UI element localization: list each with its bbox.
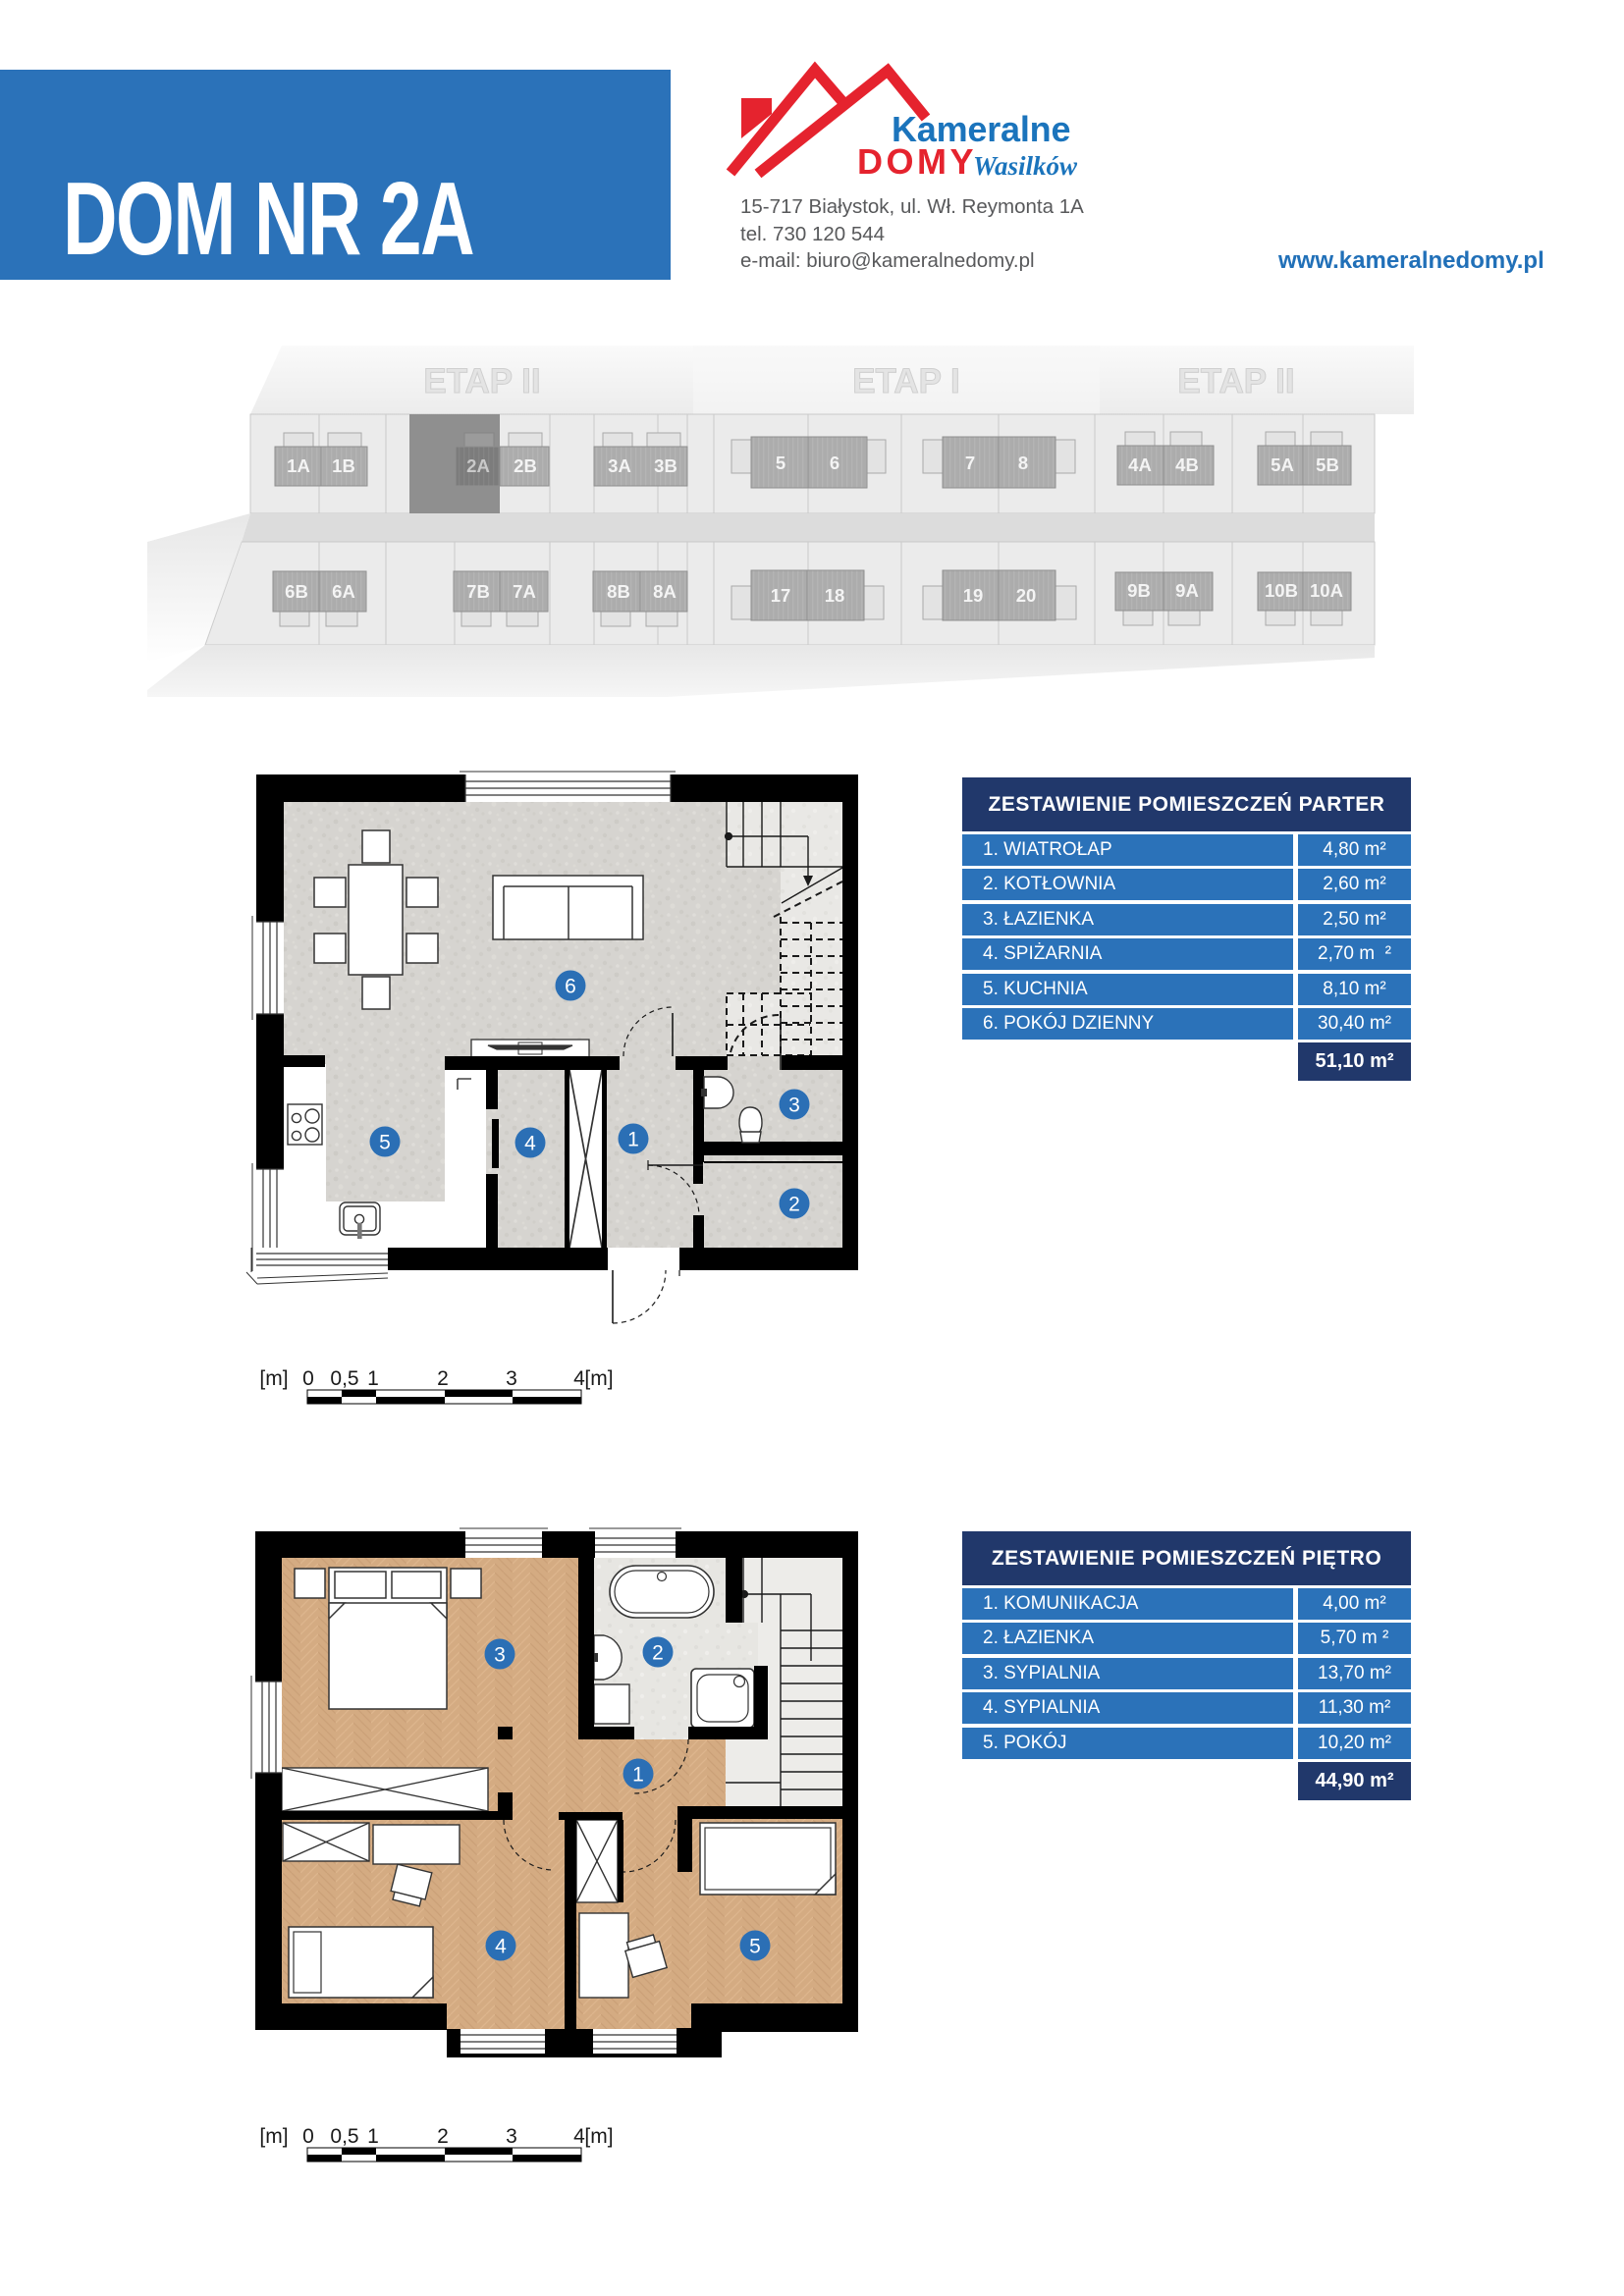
svg-text:8B: 8B xyxy=(607,581,630,602)
svg-text:2: 2 xyxy=(652,1642,664,1665)
svg-text:18: 18 xyxy=(825,585,845,606)
svg-text:ETAP I: ETAP I xyxy=(852,362,960,400)
svg-text:8A: 8A xyxy=(653,581,677,602)
svg-text:3B: 3B xyxy=(654,455,677,476)
svg-text:1: 1 xyxy=(367,1367,379,1390)
svg-text:[m]: [m] xyxy=(259,2125,288,2148)
svg-text:DOMY: DOMY xyxy=(857,141,977,182)
svg-text:5B: 5B xyxy=(1316,454,1339,475)
svg-text:ETAP II: ETAP II xyxy=(1177,362,1294,400)
svg-text:10A: 10A xyxy=(1310,580,1343,601)
svg-text:[m]: [m] xyxy=(584,2125,613,2148)
svg-text:3A: 3A xyxy=(608,455,631,476)
svg-text:5: 5 xyxy=(749,1936,761,1958)
svg-text:3: 3 xyxy=(506,1367,517,1390)
svg-text:9A: 9A xyxy=(1175,580,1199,601)
svg-text:4A: 4A xyxy=(1128,454,1152,475)
svg-text:1A: 1A xyxy=(287,455,310,476)
svg-text:17: 17 xyxy=(771,585,791,606)
svg-text:5: 5 xyxy=(776,453,785,473)
svg-text:1: 1 xyxy=(632,1764,644,1787)
svg-text:4: 4 xyxy=(573,1367,585,1390)
svg-text:4: 4 xyxy=(495,1936,507,1958)
svg-text:4: 4 xyxy=(573,2125,585,2148)
svg-text:5A: 5A xyxy=(1271,454,1294,475)
svg-text:8: 8 xyxy=(1018,453,1028,473)
svg-text:19: 19 xyxy=(963,585,984,606)
svg-text:[m]: [m] xyxy=(584,1367,613,1390)
svg-text:7B: 7B xyxy=(466,581,490,602)
svg-text:2: 2 xyxy=(437,1367,449,1390)
svg-text:7: 7 xyxy=(965,453,975,473)
svg-text:3: 3 xyxy=(506,2125,517,2148)
svg-text:5: 5 xyxy=(379,1132,391,1154)
svg-text:0: 0 xyxy=(302,1367,314,1390)
svg-text:0,5: 0,5 xyxy=(330,2125,358,2148)
svg-text:2A: 2A xyxy=(466,455,490,476)
svg-text:2: 2 xyxy=(788,1194,800,1216)
svg-text:3: 3 xyxy=(788,1095,800,1117)
svg-text:20: 20 xyxy=(1016,585,1037,606)
svg-text:1: 1 xyxy=(627,1129,639,1151)
svg-text:[m]: [m] xyxy=(259,1367,288,1390)
svg-text:9B: 9B xyxy=(1127,580,1151,601)
svg-text:7A: 7A xyxy=(513,581,536,602)
svg-text:0,5: 0,5 xyxy=(330,1367,358,1390)
svg-text:2: 2 xyxy=(437,2125,449,2148)
svg-text:6A: 6A xyxy=(332,581,355,602)
svg-text:1B: 1B xyxy=(332,455,355,476)
svg-text:3: 3 xyxy=(494,1644,506,1667)
svg-text:Wasilków: Wasilków xyxy=(973,151,1078,181)
svg-text:ETAP II: ETAP II xyxy=(423,362,540,400)
svg-text:6: 6 xyxy=(565,976,576,998)
svg-text:1: 1 xyxy=(367,2125,379,2148)
svg-text:6: 6 xyxy=(830,453,839,473)
svg-text:6B: 6B xyxy=(285,581,308,602)
svg-text:4B: 4B xyxy=(1175,454,1199,475)
svg-text:10B: 10B xyxy=(1265,580,1298,601)
svg-text:2B: 2B xyxy=(514,455,537,476)
svg-text:0: 0 xyxy=(302,2125,314,2148)
svg-text:4: 4 xyxy=(524,1133,536,1155)
